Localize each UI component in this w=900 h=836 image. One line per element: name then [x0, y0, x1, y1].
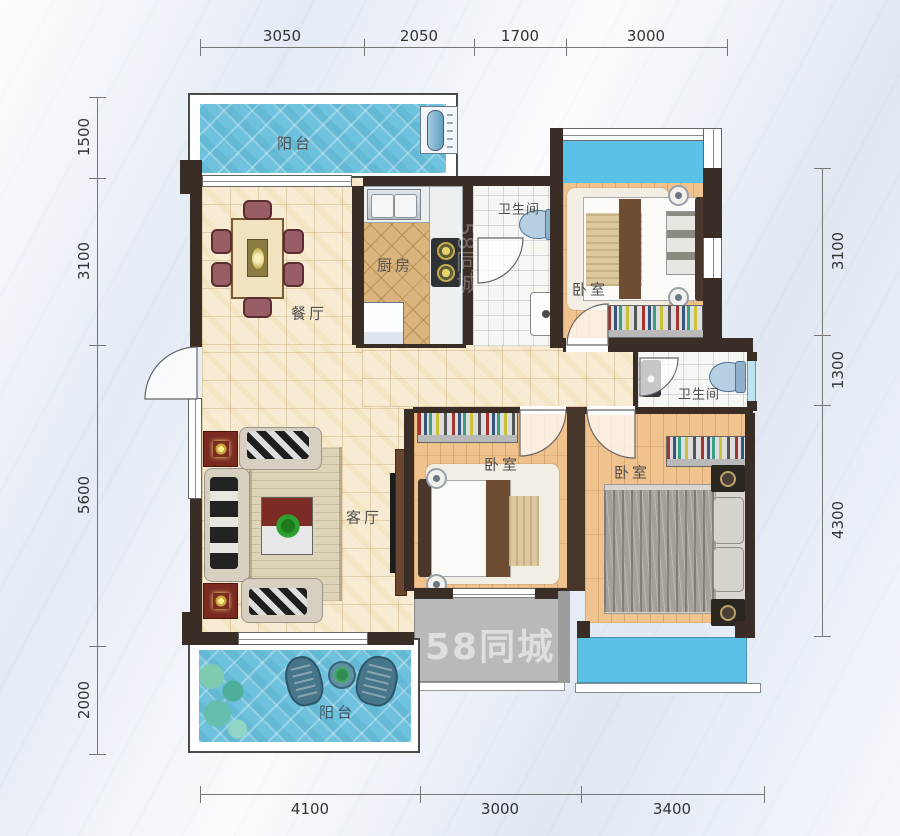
- floorplan-canvas: 阳台 餐厅 厨房 卫生间 卧室 卫生间 卧室 卧室 客厅 阳台 3050 205…: [0, 0, 900, 836]
- dim-right-3: 4300: [829, 501, 847, 539]
- bed-blanket: [509, 496, 539, 566]
- balcony-table: [328, 661, 356, 689]
- door-opening: [520, 406, 566, 414]
- wall-segment: [558, 591, 570, 683]
- dimension-line-left: [97, 97, 98, 754]
- dimension-tick: [814, 405, 831, 406]
- bedroom-top-window-glass: [563, 140, 705, 183]
- hallway-floor: [362, 345, 640, 407]
- dimension-tick: [89, 178, 106, 179]
- dimension-tick: [200, 39, 201, 56]
- bed-runner: [486, 480, 510, 577]
- bed-pillow: [713, 547, 744, 592]
- window: [188, 398, 202, 499]
- room-label-balcony-bottom: 阳台: [319, 702, 355, 723]
- wall-segment: [703, 278, 722, 342]
- room-label-bedroom-right: 卧室: [614, 462, 650, 483]
- window: [238, 632, 368, 645]
- sofa-pillows: [210, 477, 238, 569]
- dimension-line-right: [822, 168, 823, 636]
- wall-segment: [188, 632, 238, 645]
- watermark-58tongcheng: 58同城: [448, 222, 480, 294]
- bedroom-top-window-frame: [561, 128, 709, 141]
- side-table-lamp: [203, 431, 238, 467]
- wall-segment: [745, 413, 755, 623]
- plant-icon: [274, 512, 302, 540]
- dimension-tick: [89, 345, 106, 346]
- dim-right-2: 1300: [829, 351, 847, 389]
- room-label-dining: 餐厅: [291, 303, 327, 324]
- dining-chair: [243, 200, 272, 220]
- sofa-pillows: [249, 588, 307, 615]
- wall-segment: [352, 186, 364, 345]
- door-opening: [566, 338, 608, 352]
- dimension-tick: [581, 786, 582, 803]
- wall-segment: [735, 621, 755, 638]
- bedside-table: [668, 185, 689, 206]
- entry-door-arc: [145, 347, 197, 399]
- water-heater-icon: [420, 106, 458, 154]
- bay-window-glass: [577, 637, 747, 683]
- dimension-tick: [200, 786, 201, 803]
- dim-left-1: 1500: [75, 118, 93, 156]
- wall-segment: [747, 352, 757, 361]
- dining-chair: [283, 229, 304, 254]
- bookshelf: [607, 305, 711, 338]
- dim-top-2: 2050: [400, 27, 438, 45]
- dim-left-4: 2000: [75, 681, 93, 719]
- dim-bottom-3: 3400: [653, 800, 691, 818]
- dimension-tick: [89, 97, 106, 98]
- plant-icon: [197, 655, 255, 741]
- wall-segment: [368, 632, 414, 645]
- wall-segment: [190, 178, 202, 347]
- dimension-tick: [764, 786, 765, 803]
- side-table-lamp: [203, 583, 238, 619]
- wall-segment: [550, 128, 563, 348]
- dimension-tick: [814, 636, 831, 637]
- sofa-pillows: [247, 431, 309, 459]
- dining-chair: [211, 229, 232, 254]
- room-label-balcony-top: 阳台: [277, 133, 313, 154]
- fridge-icon: [362, 302, 404, 345]
- dimension-tick: [566, 39, 567, 56]
- dimension-tick: [364, 39, 365, 56]
- bookshelf: [417, 412, 518, 443]
- dim-top-3: 1700: [501, 27, 539, 45]
- dim-right-1: 3100: [829, 232, 847, 270]
- door-opening: [587, 406, 635, 415]
- room-label-kitchen: 厨房: [377, 255, 413, 276]
- dimension-tick: [89, 754, 106, 755]
- dim-bottom-1: 4100: [291, 800, 329, 818]
- kitchen-sink-icon: [367, 189, 421, 220]
- bed-blanket: [604, 490, 716, 612]
- bay-window-sill: [575, 683, 761, 693]
- window: [747, 360, 756, 402]
- room-label-living: 客厅: [346, 507, 382, 528]
- wall-segment: [633, 352, 638, 410]
- dimension-tick: [89, 646, 106, 647]
- table-runner: [247, 239, 268, 277]
- bed-pillows: [666, 211, 696, 275]
- vanity-icon: [641, 360, 661, 397]
- watermark-58tongcheng: 58同城: [425, 618, 555, 670]
- dining-chair: [283, 262, 304, 287]
- bed-runner: [619, 199, 641, 299]
- dim-bottom-2: 3000: [481, 800, 519, 818]
- dining-chair: [211, 262, 232, 287]
- wall-segment: [414, 588, 453, 599]
- balcony-sliding-window: [202, 175, 352, 187]
- dimension-tick: [420, 786, 421, 803]
- bookshelf: [666, 436, 748, 467]
- dimension-tick: [727, 39, 728, 56]
- dim-top-4: 3000: [627, 27, 665, 45]
- wall-segment: [577, 621, 590, 638]
- dimension-tick: [814, 168, 831, 169]
- wall-segment: [404, 409, 414, 591]
- bedside-table: [426, 468, 447, 489]
- nightstand: [711, 465, 745, 492]
- window: [703, 237, 722, 279]
- window: [703, 128, 722, 169]
- wall-segment: [703, 168, 722, 238]
- wall-segment: [567, 407, 585, 591]
- dim-top-1: 3050: [263, 27, 301, 45]
- room-label-bedroom-top: 卧室: [572, 279, 608, 300]
- dim-left-2: 3100: [75, 242, 93, 280]
- balcony-top-floor: [200, 104, 446, 173]
- room-label-bath-top: 卫生间: [498, 199, 540, 218]
- wall-segment: [356, 344, 466, 348]
- bed-headboard: [418, 479, 431, 577]
- platform-sill: [414, 682, 565, 691]
- dimension-line-bottom: [200, 794, 764, 795]
- room-label-bath-mid: 卫生间: [678, 384, 720, 403]
- dim-left-3: 5600: [75, 476, 93, 514]
- dimension-tick: [814, 335, 831, 336]
- room-label-bedroom-mid: 卧室: [484, 454, 520, 475]
- bed-pillow: [713, 497, 744, 544]
- dimension-tick: [474, 39, 475, 56]
- tv-icon: [390, 473, 395, 573]
- dining-chair: [243, 297, 272, 318]
- dimension-line-top: [200, 47, 727, 48]
